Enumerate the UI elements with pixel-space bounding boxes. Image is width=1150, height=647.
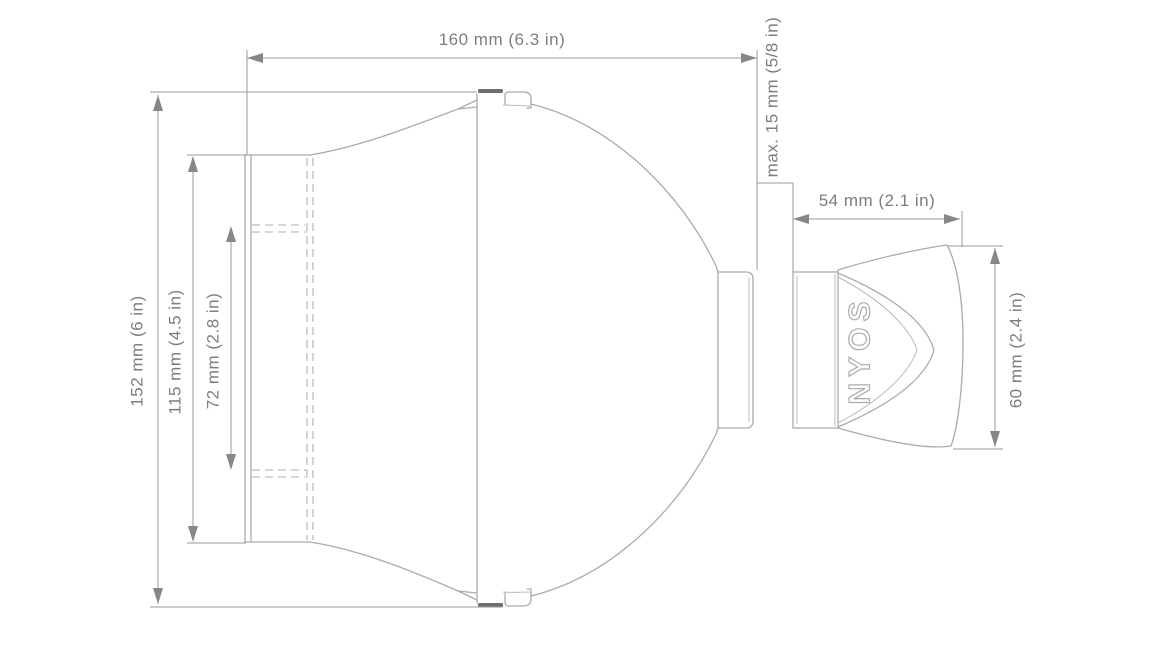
dimension-drawing-canvas: NYOS 160 mm (6.3 in) max. 15 mm (5/8 in)… xyxy=(0,0,1150,647)
arrowhead-left xyxy=(247,53,263,63)
arrowhead-bottom xyxy=(990,431,1000,447)
label-magnet-width: 54 mm (2.1 in) xyxy=(819,191,936,210)
label-glass-thickness: max. 15 mm (5/8 in) xyxy=(763,17,782,178)
dimension-glass-thickness: max. 15 mm (5/8 in) xyxy=(757,17,793,272)
dimension-magnet-height: 60 mm (2.4 in) xyxy=(948,246,1026,449)
nyos-logo: NYOS xyxy=(844,295,877,404)
arrowhead-bottom xyxy=(188,526,198,542)
body-scurve-bottom xyxy=(310,542,458,591)
inner-magnet-housing xyxy=(718,272,753,428)
device-outline xyxy=(245,89,753,607)
label-overall-height: 152 mm (6 in) xyxy=(128,295,147,406)
label-overall-width: 160 mm (6.3 in) xyxy=(439,30,566,49)
arrowhead-top xyxy=(226,226,236,242)
clamp-bottom-tick xyxy=(478,603,503,607)
arrowhead-top xyxy=(153,95,163,111)
arrowhead-right xyxy=(741,53,757,63)
label-slot-spacing: 72 mm (2.8 in) xyxy=(204,293,223,410)
dimension-magnet-width: 54 mm (2.1 in) xyxy=(793,191,962,247)
clamp-top-base xyxy=(503,105,531,106)
magnet-holder-outline: NYOS xyxy=(793,245,963,447)
clamp-bottom-latch xyxy=(505,589,531,606)
dimension-overall-width: 160 mm (6.3 in) xyxy=(247,30,757,270)
arrowhead-right xyxy=(944,214,960,224)
label-plate-height: 115 mm (4.5 in) xyxy=(166,289,185,414)
dimension-slot-spacing: 72 mm (2.8 in) xyxy=(204,226,237,470)
arrowhead-bottom xyxy=(226,454,236,470)
arrowhead-top xyxy=(188,156,198,172)
seam-wedge-top xyxy=(458,100,477,109)
arrowhead-top xyxy=(990,248,1000,264)
label-magnet-height: 60 mm (2.4 in) xyxy=(1007,292,1026,409)
arrowhead-bottom xyxy=(153,588,163,604)
arrowhead-left xyxy=(793,214,809,224)
technical-drawing: NYOS 160 mm (6.3 in) max. 15 mm (5/8 in)… xyxy=(0,0,1150,647)
clamp-top-tick xyxy=(478,89,503,93)
sphere-top-arc xyxy=(531,104,718,272)
body-scurve-top xyxy=(310,109,458,155)
seam-wedge-bottom xyxy=(458,591,477,600)
sphere-bottom-arc xyxy=(531,428,718,596)
